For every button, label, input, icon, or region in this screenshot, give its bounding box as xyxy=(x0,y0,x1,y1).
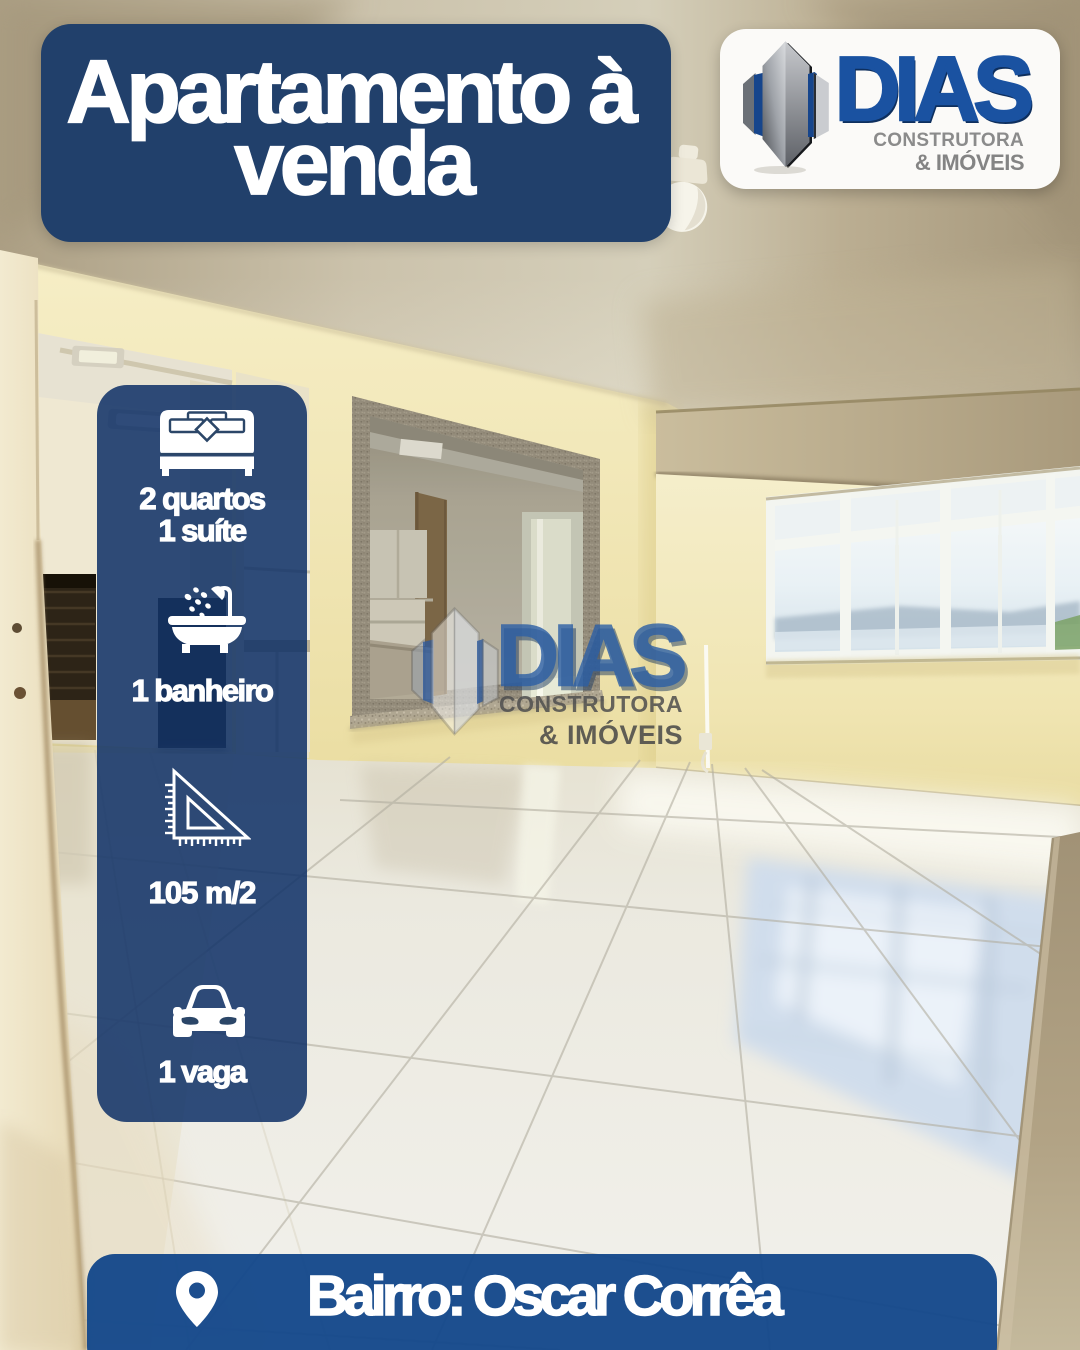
svg-text:CONSTRUTORA: CONSTRUTORA xyxy=(499,691,683,717)
svg-text:DIAS: DIAS xyxy=(497,608,684,704)
svg-text:& IMÓVEIS: & IMÓVEIS xyxy=(539,719,683,750)
